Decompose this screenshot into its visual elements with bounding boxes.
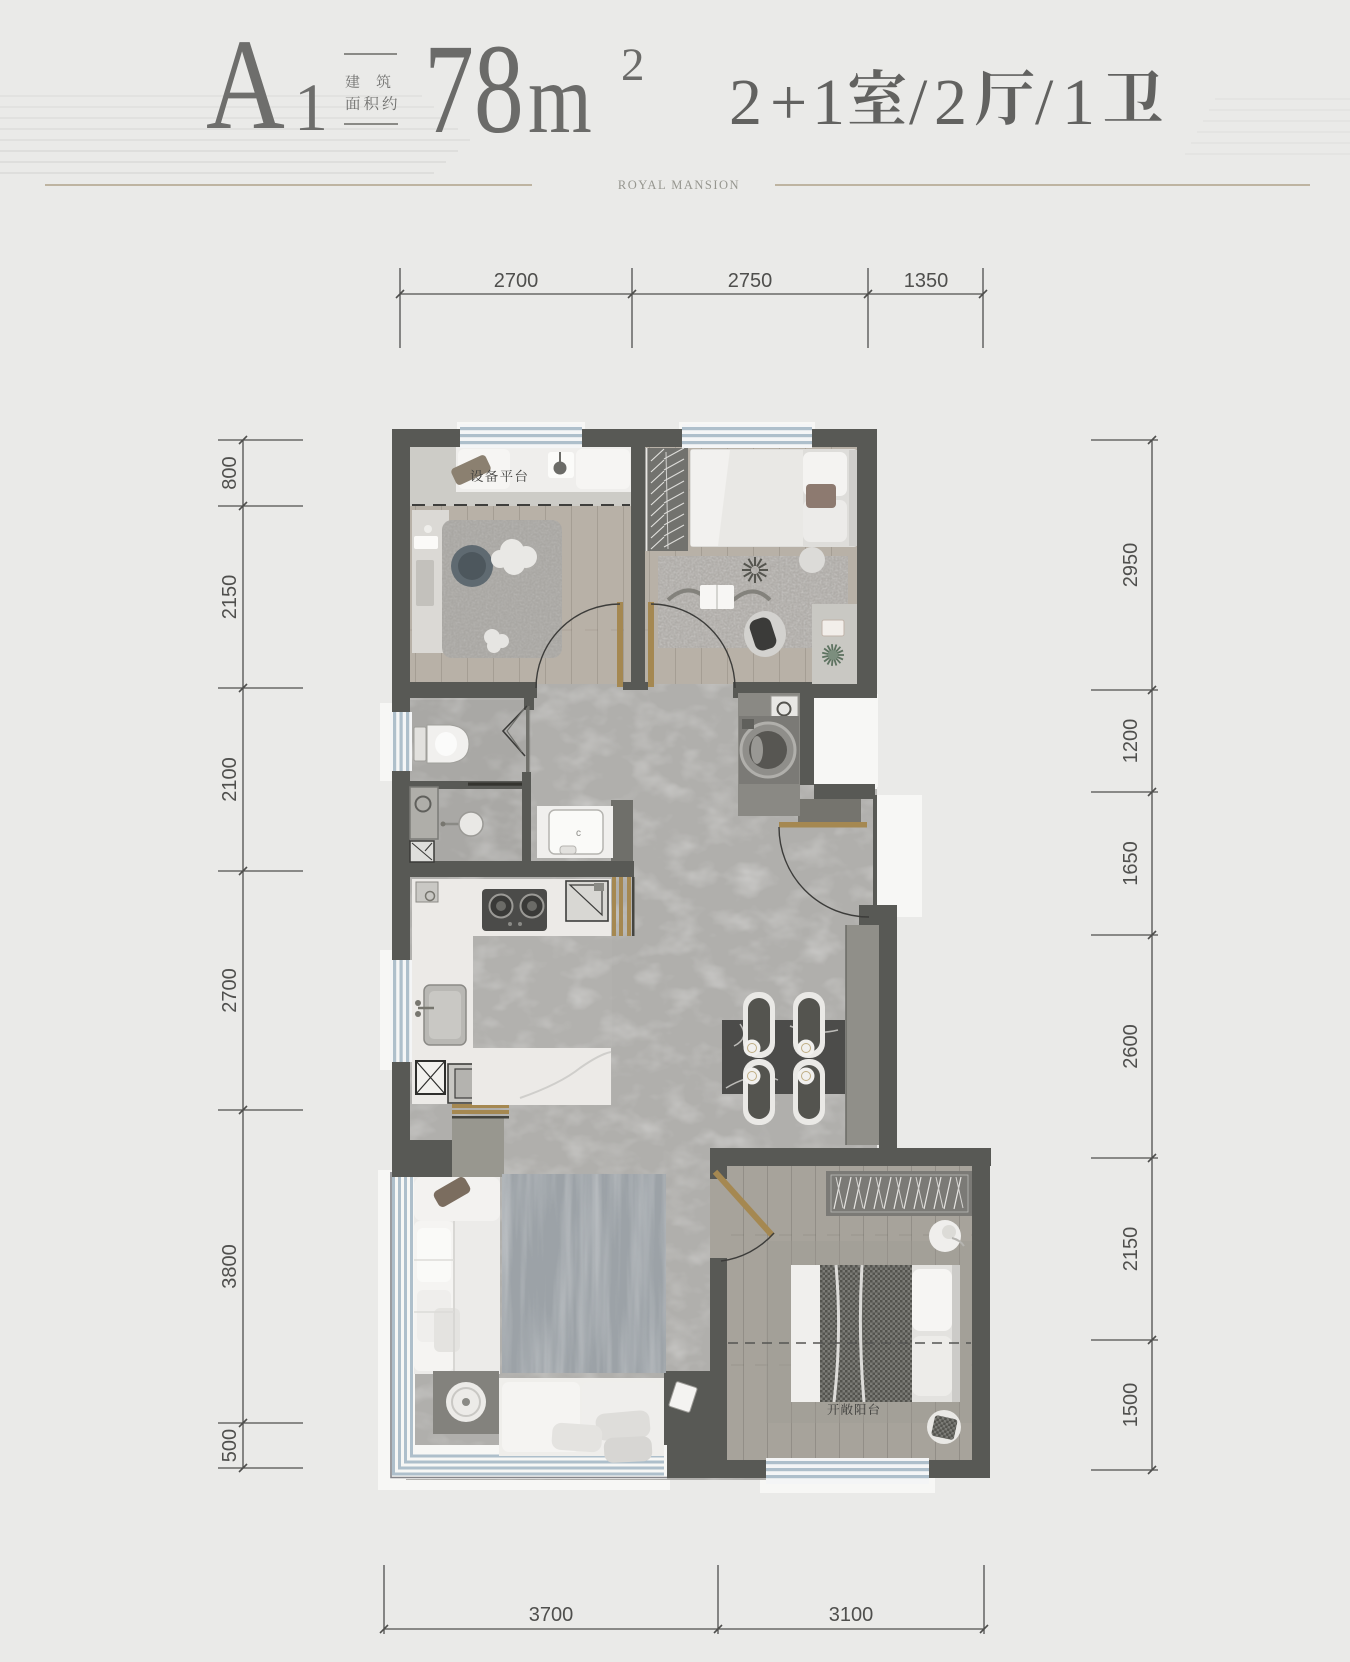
svg-text:1: 1 <box>812 66 845 139</box>
svg-text:2950: 2950 <box>1120 543 1142 588</box>
svg-text:1500: 1500 <box>1120 1383 1142 1428</box>
svg-text:2750: 2750 <box>728 270 773 292</box>
svg-text:2600: 2600 <box>1120 1024 1142 1069</box>
svg-text:2: 2 <box>729 66 762 139</box>
svg-text:1: 1 <box>294 69 328 145</box>
svg-text:3800: 3800 <box>219 1244 241 1289</box>
svg-text:800: 800 <box>219 456 241 489</box>
svg-text:2100: 2100 <box>219 757 241 802</box>
svg-text:2700: 2700 <box>494 270 539 292</box>
svg-text:3700: 3700 <box>529 1604 574 1626</box>
svg-text:A: A <box>206 12 285 156</box>
svg-text:2700: 2700 <box>219 968 241 1013</box>
svg-text:2: 2 <box>934 66 967 139</box>
svg-text:c: c <box>576 828 581 839</box>
svg-text:2: 2 <box>621 39 645 91</box>
svg-text:2150: 2150 <box>219 575 241 620</box>
svg-text:ROYAL MANSION: ROYAL MANSION <box>618 178 740 192</box>
svg-text:1650: 1650 <box>1120 841 1142 886</box>
svg-text:1350: 1350 <box>904 270 949 292</box>
svg-text:m: m <box>528 43 592 153</box>
svg-text:3100: 3100 <box>829 1604 874 1626</box>
svg-text:/: / <box>909 66 928 139</box>
svg-text:500: 500 <box>219 1429 241 1462</box>
svg-text:1200: 1200 <box>1120 719 1142 764</box>
svg-text:2150: 2150 <box>1120 1227 1142 1272</box>
svg-text:/: / <box>1035 66 1054 139</box>
svg-text:78: 78 <box>424 18 524 160</box>
svg-text:1: 1 <box>1062 66 1095 139</box>
svg-text:+: + <box>770 66 807 139</box>
